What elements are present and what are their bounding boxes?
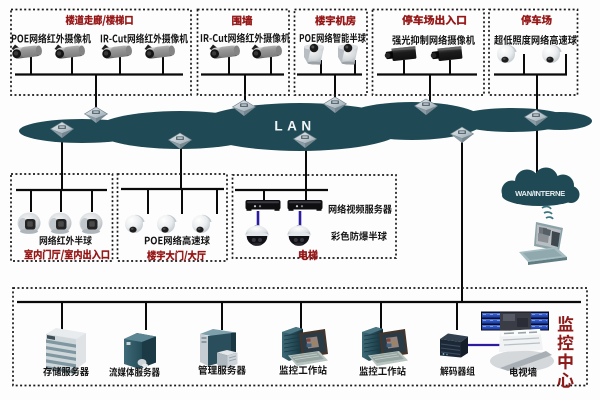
- svg-text:LAN: LAN: [274, 119, 315, 134]
- svg-text:WAN/INTERNE: WAN/INTERNE: [515, 189, 565, 198]
